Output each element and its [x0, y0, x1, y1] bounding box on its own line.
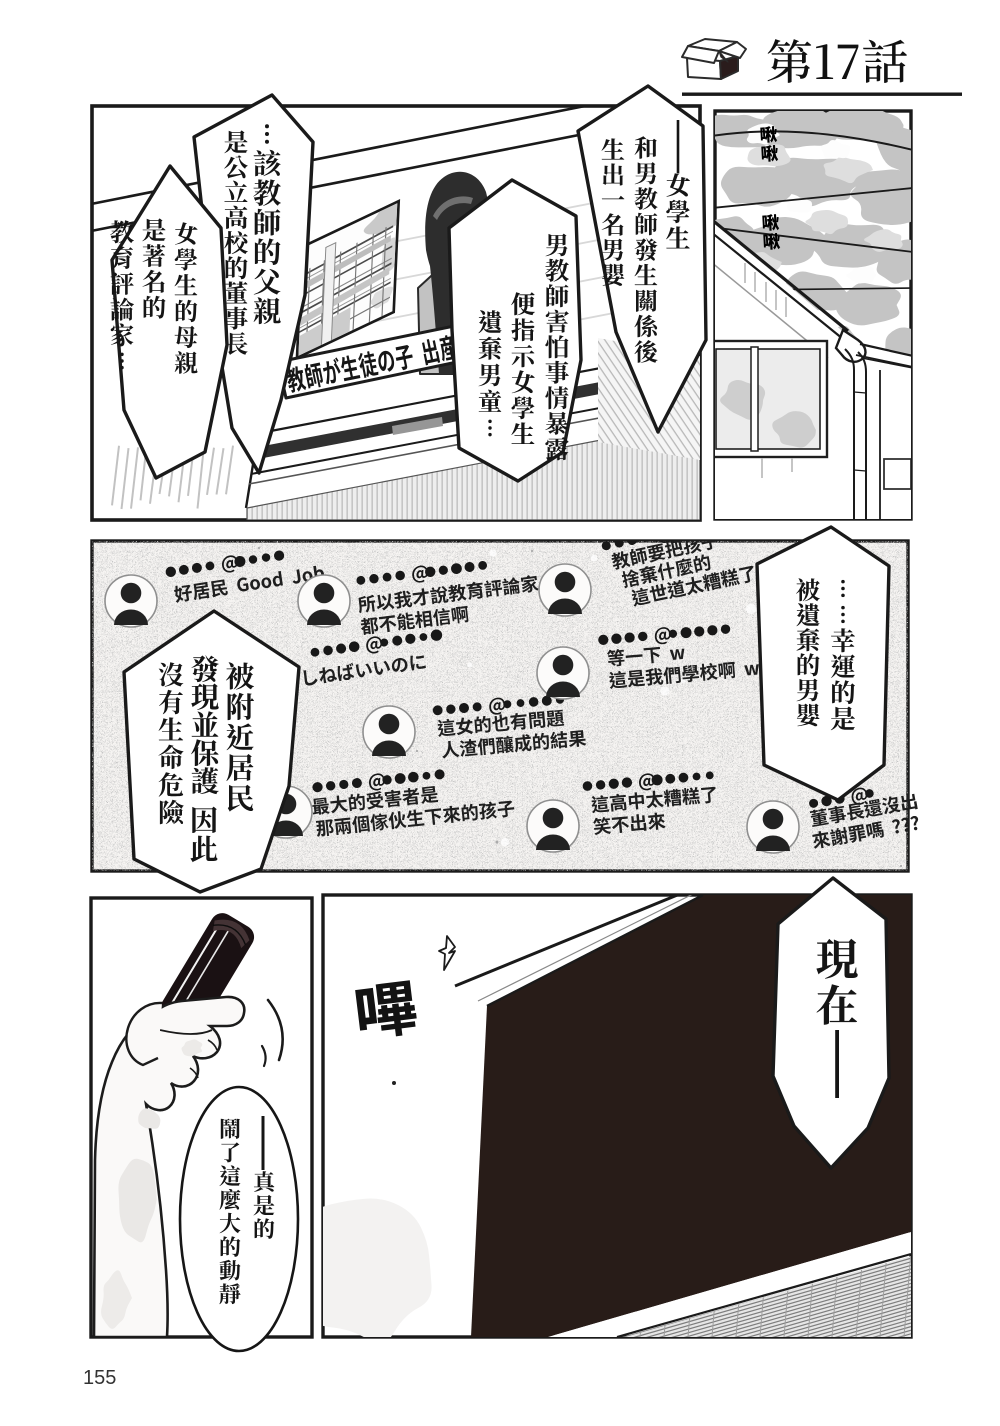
svg-text:155: 155 — [83, 1367, 116, 1389]
